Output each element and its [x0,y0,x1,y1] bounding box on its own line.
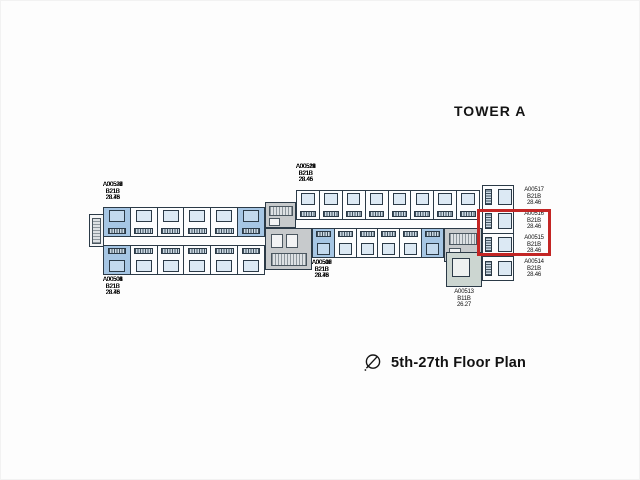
unit-pod [452,258,471,278]
unit-pod [189,260,205,272]
unit-pod [136,210,152,222]
elevator-box [269,218,280,226]
bed-hatch [381,231,396,237]
unit-pod [136,260,152,272]
stair-hatch [269,206,293,216]
unit-cell-A00501[interactable] [104,246,131,274]
unit-label-A00518: A00518B21B28.46 [296,164,316,184]
unit-cell-A00502[interactable] [131,246,158,274]
elevator-box [271,234,283,248]
unit-pod [317,243,330,255]
unit-cell-A00518[interactable] [457,191,479,219]
unit-pod [438,193,452,205]
unit-cell-A00520[interactable] [411,191,434,219]
bed-hatch [338,231,353,237]
unit-type-text: B21B [516,194,552,201]
unit-id-text: A00518 [296,164,316,171]
bed-hatch [316,231,331,237]
bed-hatch [403,231,418,237]
bed-hatch [346,211,362,217]
unit-cell-A00506[interactable] [238,246,264,274]
unit-pod [189,210,205,222]
bed-hatch [242,228,261,234]
unit-id-text: A00506 [103,277,123,284]
unit-row-right-bottom [312,228,444,258]
unit-label-A00513: A00513B11B26.27 [438,289,490,309]
unit-pod [461,193,475,205]
unit-pod [404,243,417,255]
unit-label-A00512: A00512B21B28.73 [312,260,332,280]
caption-row: 5th-27th Floor Plan [363,353,526,372]
unit-cell-A00527[interactable] [211,208,238,236]
unit-cell-A00526[interactable] [238,208,264,236]
unit-type-text: B21B [103,284,123,291]
unit-pod [498,189,512,204]
unit-cell-A00505[interactable] [211,246,238,274]
bed-hatch [369,211,385,217]
unit-cell-A00521[interactable] [389,191,412,219]
stair-hatch [449,233,477,245]
bed-hatch [360,231,375,237]
unit-cell-A00507[interactable] [313,229,335,257]
unit-pod [339,243,352,255]
unit-type-text: B21B [296,171,316,178]
north-arrow-icon [363,353,382,372]
unit-row-left-top [103,207,265,237]
unit-id-text: A00513 [438,289,490,296]
unit-label-A00506: A00506B21B28.46 [103,277,123,297]
unit-pod [216,210,232,222]
unit-area-text: 28.46 [516,200,552,207]
unit-cell-A00528[interactable] [184,208,211,236]
unit-type-text: B21B [103,189,123,196]
unit-cell-A00525[interactable] [297,191,320,219]
unit-label-A00514: A00514B21B28.46 [516,259,552,279]
unit-id-text: A00514 [516,259,552,266]
unit-pod [416,193,430,205]
unit-pod [370,193,384,205]
unit-cell-A00510[interactable] [378,229,400,257]
unit-cell-A00511[interactable] [400,229,422,257]
unit-row-right-top [296,190,480,220]
unit-pod [347,193,361,205]
bed-hatch [161,248,180,254]
unit-cell-A00504[interactable] [184,246,211,274]
bed-hatch [108,228,127,234]
unit-pod [163,210,179,222]
stair-hatch [92,218,101,244]
stair-hatch [271,253,307,266]
core-mid-upper [265,202,296,228]
bed-hatch [323,211,339,217]
unit-pod [324,193,338,205]
unit-cell-A00512[interactable] [422,229,443,257]
bed-hatch [134,248,153,254]
unit-label-A00526: A00526B21B28.73 [103,182,123,202]
unit-label-A00517: A00517B21B28.46 [516,187,552,207]
core-mid-lower [265,228,312,270]
unit-cell-A00523[interactable] [343,191,366,219]
selection-highlight-box [477,209,551,256]
unit-pod [243,260,259,272]
unit-cell-A00530[interactable] [131,208,158,236]
bed-hatch [161,228,180,234]
bed-hatch [414,211,430,217]
unit-id-text: A00512 [312,260,332,267]
unit-pod [109,260,125,272]
unit-cell-A00524[interactable] [320,191,343,219]
floor-plan-caption: 5th-27th Floor Plan [391,355,526,371]
unit-type-text: B21B [516,266,552,273]
bed-hatch [485,261,492,276]
bed-hatch [460,211,476,217]
unit-pod [301,193,315,205]
unit-cell-A00508[interactable] [335,229,357,257]
unit-id-text: A00526 [103,182,123,189]
bed-hatch [108,248,127,254]
stair-west [89,214,104,247]
unit-cell-A00503[interactable] [158,246,185,274]
bed-hatch [392,211,408,217]
bed-hatch [134,228,153,234]
unit-row-left-bottom [103,245,265,275]
unit-cell-A00522[interactable] [366,191,389,219]
unit-cell-A00519[interactable] [434,191,457,219]
unit-cell-A00514[interactable] [483,257,513,280]
unit-pod [163,260,179,272]
bed-hatch [300,211,316,217]
bed-hatch [242,248,261,254]
unit-cell-A00513[interactable] [446,252,482,287]
bed-hatch [485,189,492,204]
bed-hatch [425,231,440,237]
unit-pod [216,260,232,272]
elevator-box [286,234,298,248]
unit-area-text: 28.46 [103,290,123,297]
unit-pod [393,193,407,205]
bed-hatch [437,211,453,217]
bed-hatch [215,248,234,254]
unit-cell-A00509[interactable] [357,229,379,257]
bed-hatch [215,228,234,234]
unit-id-text: A00517 [516,187,552,194]
unit-pod [426,243,439,255]
unit-pod [109,210,125,222]
unit-area-text: 26.27 [438,302,490,309]
unit-pod [243,210,259,222]
unit-cell-A00531[interactable] [104,208,131,236]
tower-title: TOWER A [454,103,526,119]
floor-plan-page: TOWER A A00531B21B28.73A00530B21B28.46A0… [0,0,640,480]
unit-pod [382,243,395,255]
bed-hatch [188,248,207,254]
unit-area-text: 28.46 [516,272,552,279]
unit-area-text: 28.73 [312,273,332,280]
bed-hatch [188,228,207,234]
unit-area-text: 28.73 [103,195,123,202]
unit-type-text: B21B [312,267,332,274]
unit-pod [498,261,512,276]
unit-type-text: B11B [438,296,490,303]
unit-cell-A00529[interactable] [158,208,185,236]
unit-pod [361,243,374,255]
unit-area-text: 28.46 [296,177,316,184]
unit-cell-A00517[interactable] [483,186,513,210]
